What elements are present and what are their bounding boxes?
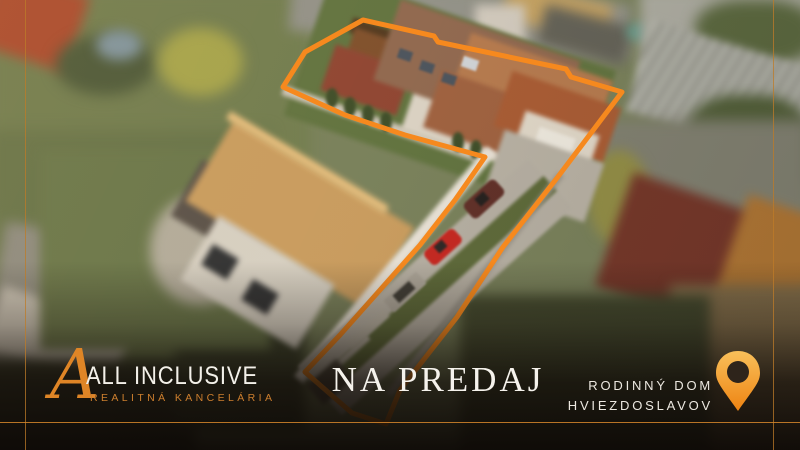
map-pin-icon — [714, 350, 762, 412]
agency-tagline: REALITNÁ KANCELÁRIA — [90, 392, 275, 404]
location-name: HVIEZDOSLAVOV — [568, 396, 713, 416]
agency-name: ALL INCLUSIVE — [86, 362, 258, 391]
location-block: RODINNÝ DOM HVIEZDOSLAVOV — [568, 376, 713, 415]
status-label: NA PREDAJ — [300, 360, 576, 400]
footer-overlay: A ALL INCLUSIVE REALITNÁ KANCELÁRIA NA P… — [0, 0, 800, 450]
listing-banner: A ALL INCLUSIVE REALITNÁ KANCELÁRIA NA P… — [0, 0, 800, 450]
property-type: RODINNÝ DOM — [568, 376, 713, 396]
